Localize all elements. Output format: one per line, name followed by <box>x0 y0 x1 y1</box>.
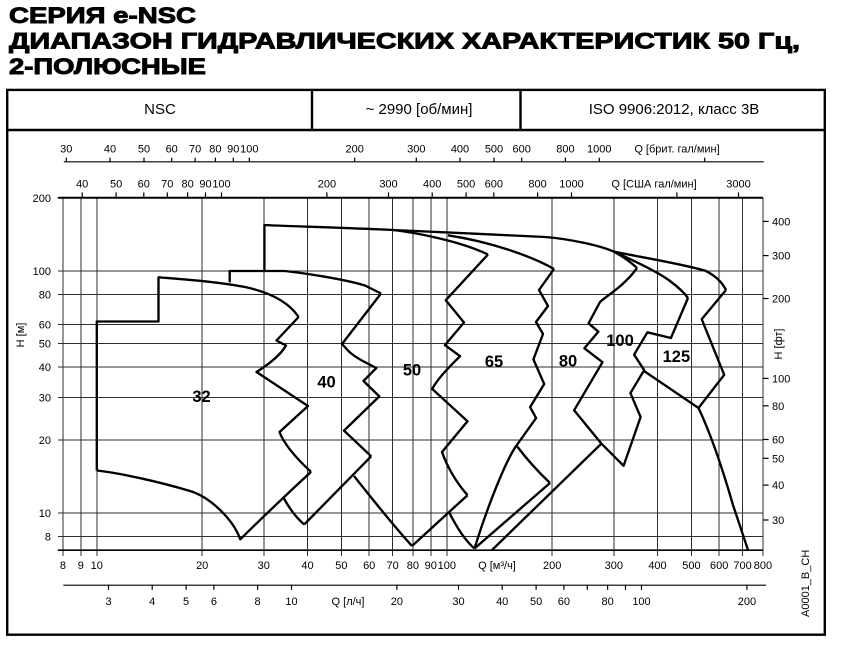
svg-text:200: 200 <box>33 193 51 205</box>
svg-text:20: 20 <box>391 596 403 608</box>
svg-text:ISO 9906:2012, класс 3В: ISO 9906:2012, класс 3В <box>589 101 760 118</box>
svg-text:30: 30 <box>772 515 784 527</box>
svg-text:300: 300 <box>379 179 397 191</box>
svg-text:40: 40 <box>496 596 508 608</box>
svg-text:50: 50 <box>335 560 347 572</box>
svg-text:1000: 1000 <box>559 179 583 191</box>
svg-text:200: 200 <box>346 144 364 156</box>
svg-text:400: 400 <box>451 144 469 156</box>
svg-text:80: 80 <box>407 560 419 572</box>
svg-text:300: 300 <box>407 144 425 156</box>
svg-text:70: 70 <box>386 560 398 572</box>
svg-text:40: 40 <box>104 144 116 156</box>
svg-text:50: 50 <box>772 453 784 465</box>
svg-text:100: 100 <box>212 179 230 191</box>
svg-text:90: 90 <box>199 179 211 191</box>
svg-text:50: 50 <box>530 596 542 608</box>
svg-text:3000: 3000 <box>726 179 750 191</box>
svg-text:125: 125 <box>663 348 691 366</box>
svg-text:400: 400 <box>423 179 441 191</box>
svg-text:40: 40 <box>76 179 88 191</box>
svg-text:60: 60 <box>166 144 178 156</box>
svg-text:9: 9 <box>78 560 84 572</box>
svg-text:H [фт]: H [фт] <box>773 329 785 360</box>
svg-text:60: 60 <box>138 179 150 191</box>
svg-text:1000: 1000 <box>587 144 611 156</box>
svg-text:20: 20 <box>39 435 51 447</box>
svg-text:800: 800 <box>754 560 772 572</box>
svg-text:500: 500 <box>682 560 700 572</box>
svg-text:60: 60 <box>772 435 784 447</box>
svg-text:H [м]: H [м] <box>15 323 27 348</box>
svg-text:СЕРИЯ e-NSC: СЕРИЯ e-NSC <box>9 3 196 28</box>
svg-text:300: 300 <box>605 560 623 572</box>
svg-text:ДИАПАЗОН ГИДРАВЛИЧЕСКИХ ХАРАКТ: ДИАПАЗОН ГИДРАВЛИЧЕСКИХ ХАРАКТЕРИСТИК 50… <box>9 29 800 54</box>
svg-text:90: 90 <box>227 144 239 156</box>
svg-text:600: 600 <box>513 144 531 156</box>
svg-text:70: 70 <box>161 179 173 191</box>
svg-text:5: 5 <box>183 596 189 608</box>
svg-text:800: 800 <box>556 144 574 156</box>
svg-text:Q [л/ч]: Q [л/ч] <box>332 596 365 608</box>
svg-text:30: 30 <box>39 393 51 405</box>
svg-text:6: 6 <box>211 596 217 608</box>
svg-text:90: 90 <box>425 560 437 572</box>
svg-text:100: 100 <box>240 144 258 156</box>
svg-text:40: 40 <box>772 480 784 492</box>
svg-text:A0001_B_CH: A0001_B_CH <box>800 550 812 617</box>
svg-text:60: 60 <box>39 320 51 332</box>
svg-text:20: 20 <box>196 560 208 572</box>
svg-text:200: 200 <box>772 294 790 306</box>
svg-text:4: 4 <box>149 596 155 608</box>
svg-text:30: 30 <box>60 144 72 156</box>
svg-text:10: 10 <box>91 560 103 572</box>
svg-text:~ 2990 [об/мин]: ~ 2990 [об/мин] <box>366 101 473 118</box>
svg-text:200: 200 <box>318 179 336 191</box>
svg-text:80: 80 <box>209 144 221 156</box>
svg-text:80: 80 <box>559 353 577 371</box>
svg-text:60: 60 <box>363 560 375 572</box>
svg-text:100: 100 <box>632 596 650 608</box>
svg-text:50: 50 <box>110 179 122 191</box>
svg-text:50: 50 <box>39 339 51 351</box>
svg-text:50: 50 <box>138 144 150 156</box>
svg-text:300: 300 <box>772 251 790 263</box>
svg-text:800: 800 <box>528 179 546 191</box>
svg-text:80: 80 <box>39 289 51 301</box>
svg-text:40: 40 <box>317 374 335 392</box>
svg-text:65: 65 <box>485 353 503 371</box>
svg-text:30: 30 <box>258 560 270 572</box>
svg-text:500: 500 <box>485 144 503 156</box>
svg-text:600: 600 <box>485 179 503 191</box>
svg-text:NSC: NSC <box>144 101 176 118</box>
svg-text:8: 8 <box>45 532 51 544</box>
svg-text:80: 80 <box>181 179 193 191</box>
svg-text:100: 100 <box>772 373 790 385</box>
svg-text:Q [США гал/мин]: Q [США гал/мин] <box>611 179 696 191</box>
svg-text:400: 400 <box>772 216 790 228</box>
svg-text:80: 80 <box>601 596 613 608</box>
svg-text:40: 40 <box>39 362 51 374</box>
svg-text:50: 50 <box>403 362 421 380</box>
svg-text:Q [м³/ч]: Q [м³/ч] <box>478 560 516 572</box>
svg-text:200: 200 <box>543 560 561 572</box>
svg-text:80: 80 <box>772 401 784 413</box>
svg-text:100: 100 <box>438 560 456 572</box>
svg-text:60: 60 <box>558 596 570 608</box>
svg-text:200: 200 <box>738 596 756 608</box>
svg-text:70: 70 <box>189 144 201 156</box>
svg-text:32: 32 <box>192 388 210 406</box>
svg-text:10: 10 <box>39 508 51 520</box>
svg-text:500: 500 <box>457 179 475 191</box>
svg-text:3: 3 <box>105 596 111 608</box>
svg-text:8: 8 <box>255 596 261 608</box>
svg-text:30: 30 <box>452 596 464 608</box>
svg-text:600: 600 <box>710 560 728 572</box>
svg-text:700: 700 <box>733 560 751 572</box>
svg-text:40: 40 <box>301 560 313 572</box>
svg-text:8: 8 <box>60 560 66 572</box>
svg-text:100: 100 <box>606 332 634 350</box>
svg-text:100: 100 <box>33 266 51 278</box>
svg-text:400: 400 <box>648 560 666 572</box>
svg-text:10: 10 <box>285 596 297 608</box>
svg-text:2-ПОЛЮСНЫЕ: 2-ПОЛЮСНЫЕ <box>9 54 206 79</box>
svg-text:Q [брит. гал/мин]: Q [брит. гал/мин] <box>634 144 719 156</box>
